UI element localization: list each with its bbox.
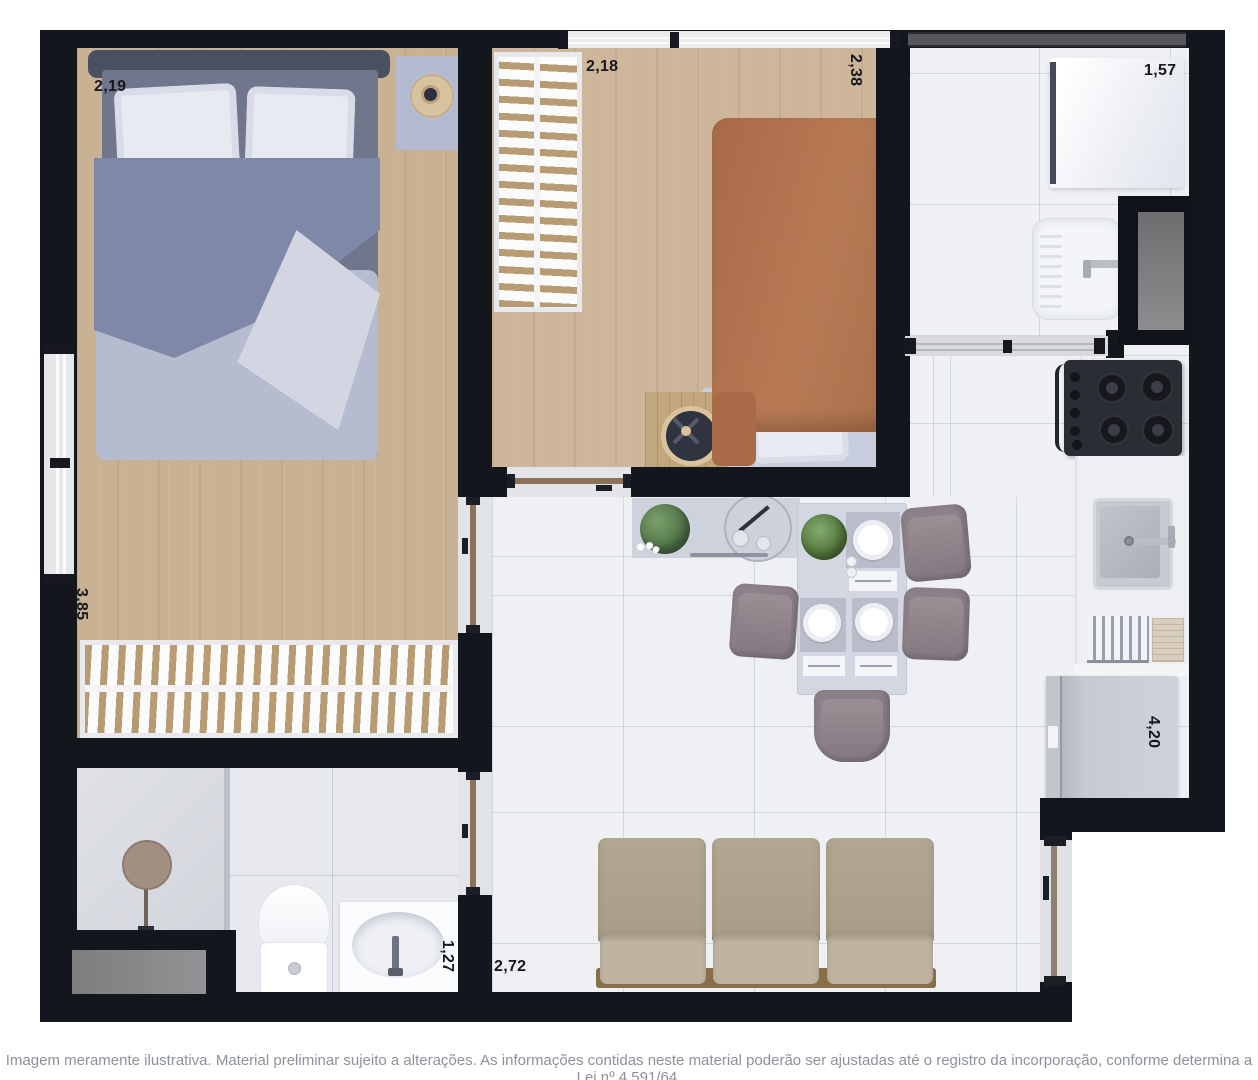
cooktop-knob — [1070, 372, 1080, 382]
door-hinge — [623, 474, 631, 488]
counter-end — [1075, 664, 1188, 676]
wall — [458, 738, 492, 772]
plant-flowers — [634, 540, 660, 554]
wall — [876, 30, 910, 497]
dimension-label-bedroom1-width: 2,19 — [94, 78, 126, 96]
window-frame-cap — [890, 30, 900, 49]
sink-faucet-riser — [1168, 526, 1175, 548]
door-handle — [596, 485, 612, 491]
sink-drain — [1124, 536, 1134, 546]
dinner-plate — [853, 520, 893, 560]
door-hinge — [466, 497, 480, 505]
door-hinge — [507, 474, 515, 488]
door-hinge — [1044, 976, 1066, 986]
burner — [1140, 370, 1174, 404]
dimension-label-living-width: 2,72 — [494, 958, 526, 976]
cooktop-knob — [1072, 440, 1082, 450]
window-laundry — [908, 32, 1186, 47]
door-hinge — [466, 887, 480, 895]
laundry-faucet-tip — [1083, 260, 1091, 278]
dining-chair — [814, 690, 890, 762]
dinner-plate — [855, 603, 893, 641]
window-frame-cap — [44, 574, 74, 584]
cooktop-knob — [1070, 426, 1080, 436]
dinner-plate — [803, 604, 841, 642]
table-plant — [801, 514, 847, 560]
dining-chair — [900, 503, 972, 582]
window-bedroom2-pane — [566, 37, 894, 39]
bathroom-door-leaf — [470, 776, 476, 891]
bedroom2-door-leaf — [510, 478, 628, 484]
wall — [458, 895, 492, 1022]
dimension-label-bedroom2-width: 2,18 — [586, 58, 618, 76]
sofa-back-cushion — [598, 838, 706, 942]
dining-chair — [902, 587, 970, 661]
window-frame-cap — [558, 30, 568, 49]
sofa-back-cushion — [712, 838, 820, 942]
wall — [458, 467, 507, 497]
bedroom1-door-leaf — [470, 501, 476, 629]
napkin-cutlery — [854, 655, 898, 677]
cooktop-knob — [1070, 390, 1080, 400]
wall — [458, 30, 492, 497]
sofa-seat-cushion — [600, 934, 706, 984]
napkin-cutlery — [802, 655, 846, 677]
table-fan-hub — [681, 426, 691, 436]
window-frame-cap — [44, 344, 74, 354]
dimension-label-bedroom1-length: 3,85 — [72, 588, 90, 620]
vanity-faucet-base — [388, 968, 403, 976]
bathroom-niche — [72, 950, 206, 994]
door-cap — [1094, 338, 1105, 354]
wall — [631, 467, 910, 497]
serving-tray — [724, 494, 792, 562]
dimension-label-bedroom2-length: 2,38 — [846, 54, 864, 86]
door-cap — [905, 338, 916, 354]
dimension-label-laundry-width: 1,57 — [1144, 62, 1176, 80]
laundry-tank-ridges — [1040, 228, 1062, 308]
door-handle — [1043, 876, 1049, 900]
dimension-label-bathroom-width: 1,27 — [438, 940, 456, 972]
entrance-door-leaf — [1051, 844, 1057, 978]
disclaimer-text: Imagem meramente ilustrativa. Material p… — [0, 1052, 1258, 1080]
shower-glass — [224, 768, 230, 932]
wall — [1040, 982, 1072, 1022]
floor-plan: 2,19 3,85 2,18 2,38 1,57 4,20 2,72 1,27 … — [0, 0, 1258, 1080]
burner — [1141, 413, 1175, 447]
vanity-faucet — [392, 936, 399, 972]
burner — [1098, 414, 1130, 446]
door-handle — [462, 824, 468, 838]
burner — [1096, 372, 1128, 404]
single-bed-duvet-flap — [712, 392, 756, 466]
refrigerator-handle — [1048, 726, 1058, 748]
window-bedroom2 — [562, 31, 898, 48]
tray-cup — [732, 530, 749, 547]
single-bed-duvet — [712, 118, 893, 432]
cooktop-handle — [1055, 364, 1069, 452]
wall — [1040, 798, 1225, 832]
pepper-shaker — [846, 567, 857, 578]
wardrobe-bedroom2-divider — [534, 57, 540, 307]
door-hinge — [466, 772, 480, 780]
sideboard-board — [690, 553, 768, 557]
cooktop-knob — [1070, 408, 1080, 418]
dining-chair — [729, 583, 800, 660]
utility-shaft-inner — [1138, 212, 1184, 330]
sofa-back-cushion — [826, 838, 934, 942]
dish-rack — [1087, 616, 1149, 663]
door-hinge — [1044, 836, 1066, 846]
tray-cup — [756, 536, 771, 551]
cutting-board — [1152, 618, 1184, 662]
wall — [458, 633, 492, 740]
window-frame-cap — [50, 458, 70, 468]
dimension-label-kitchen-length: 4,20 — [1144, 716, 1162, 748]
wall — [40, 738, 492, 768]
toilet-flush-button — [288, 962, 301, 975]
wardrobe-bedroom1-divider — [85, 685, 453, 692]
door-handle — [462, 538, 468, 554]
sofa-seat-cushion — [713, 934, 819, 984]
washing-machine-panel — [1050, 62, 1056, 184]
window-frame-cap — [670, 32, 679, 48]
shower-head — [122, 840, 172, 890]
decor-plate-center — [424, 88, 437, 101]
door-hinge — [466, 625, 480, 633]
sofa-seat-cushion — [827, 934, 933, 984]
wall — [1189, 30, 1225, 830]
salt-shaker — [846, 556, 857, 567]
door-cap — [1003, 340, 1012, 353]
window-bedroom2-pane — [566, 42, 894, 44]
